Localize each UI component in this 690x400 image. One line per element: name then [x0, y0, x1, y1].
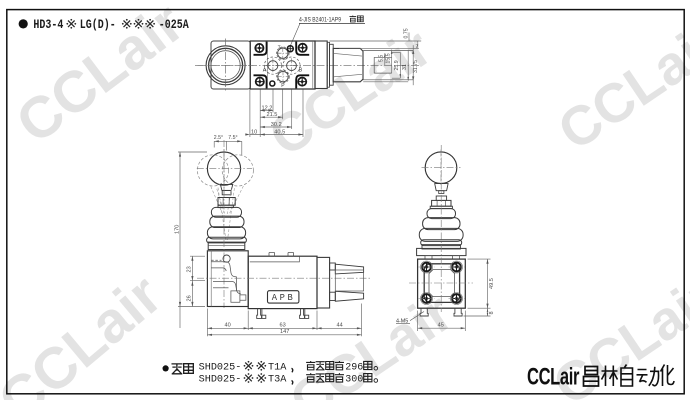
- svg-text:10: 10: [251, 129, 257, 135]
- svg-text:26: 26: [187, 295, 193, 301]
- svg-text:APB: APB: [272, 293, 296, 303]
- svg-text:15.5: 15.5: [386, 53, 392, 63]
- svg-text:40: 40: [225, 322, 231, 328]
- svg-text:7: 7: [416, 44, 419, 50]
- svg-text:-025A: -025A: [159, 18, 189, 32]
- svg-text:12.2: 12.2: [262, 105, 273, 111]
- svg-text:SHD025-: SHD025-: [199, 375, 242, 386]
- svg-text:8: 8: [489, 311, 495, 314]
- svg-text:63: 63: [280, 322, 286, 328]
- svg-text:40.5: 40.5: [274, 129, 285, 135]
- svg-text:300: 300: [345, 375, 363, 386]
- svg-text:HD3-4: HD3-4: [33, 18, 63, 32]
- svg-text:45: 45: [438, 322, 444, 328]
- svg-text:49.5: 49.5: [489, 278, 495, 289]
- svg-text:7.5°: 7.5°: [228, 135, 237, 141]
- svg-text:25.9: 25.9: [394, 60, 400, 70]
- svg-text:LG(D)-: LG(D)-: [80, 18, 116, 32]
- svg-text:T1A: T1A: [268, 362, 287, 373]
- svg-text:T3A: T3A: [268, 375, 287, 386]
- svg-text:170: 170: [174, 225, 180, 234]
- svg-text:CCLair: CCLair: [527, 363, 579, 390]
- svg-text:23: 23: [187, 266, 193, 272]
- svg-text:30.2: 30.2: [271, 122, 282, 128]
- svg-text:0.75: 0.75: [403, 28, 409, 38]
- svg-text:B: B: [299, 68, 303, 74]
- svg-text:T: T: [278, 44, 281, 49]
- svg-text:31.75: 31.75: [413, 60, 419, 73]
- svg-text:147: 147: [280, 329, 289, 335]
- svg-text:44: 44: [337, 322, 343, 328]
- svg-text:21.5: 21.5: [267, 112, 278, 118]
- svg-text:5.5: 5.5: [378, 55, 384, 62]
- svg-text:4-JIS B2401-1AP9: 4-JIS B2401-1AP9: [299, 17, 341, 24]
- svg-text:296: 296: [345, 362, 363, 373]
- svg-text:SHD025-: SHD025-: [199, 362, 242, 373]
- svg-text:31: 31: [402, 64, 408, 70]
- svg-text:A: A: [263, 68, 267, 74]
